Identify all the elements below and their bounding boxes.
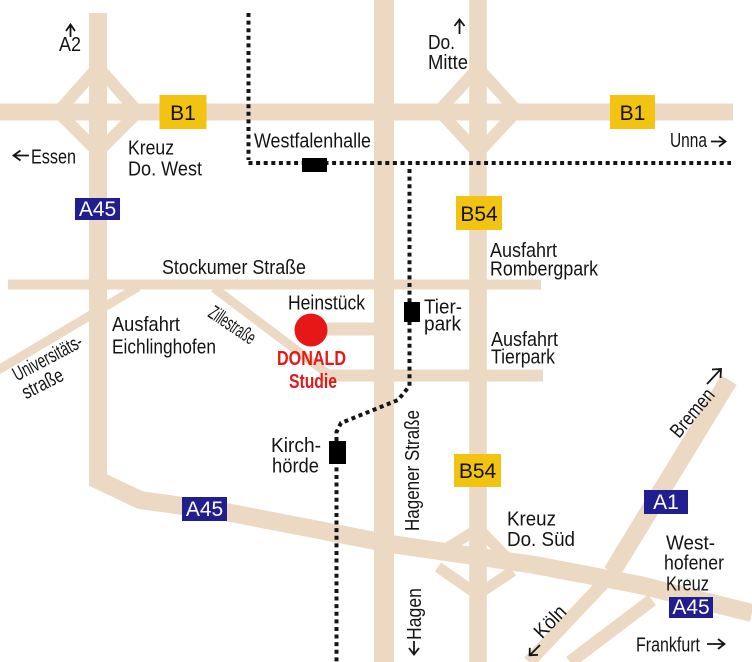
svg-text:Westfalenhalle: Westfalenhalle xyxy=(254,131,371,153)
svg-text:Unna: Unna xyxy=(670,130,708,152)
svg-text:Frankfurt: Frankfurt xyxy=(636,635,700,657)
svg-text:A1: A1 xyxy=(653,491,679,514)
svg-text:B1: B1 xyxy=(170,102,196,125)
svg-text:B54: B54 xyxy=(459,460,497,483)
svg-text:hörde: hörde xyxy=(272,456,319,478)
svg-text:Kreuz: Kreuz xyxy=(666,574,709,596)
svg-text:hofener: hofener xyxy=(664,553,724,575)
svg-text:Hagener Straße: Hagener Straße xyxy=(402,410,424,531)
svg-text:Rombergpark: Rombergpark xyxy=(490,259,599,281)
svg-text:Eichlinghofen: Eichlinghofen xyxy=(112,337,216,359)
svg-text:Kreuz: Kreuz xyxy=(128,138,174,160)
svg-text:Studie: Studie xyxy=(289,371,337,393)
svg-text:Do. Süd: Do. Süd xyxy=(507,529,575,551)
svg-text:Hagen: Hagen xyxy=(404,588,426,640)
svg-text:Kirch-: Kirch- xyxy=(271,435,321,457)
svg-text:Mitte: Mitte xyxy=(428,52,468,74)
svg-text:Tierpark: Tierpark xyxy=(491,347,556,369)
svg-text:A45: A45 xyxy=(79,198,116,221)
svg-text:Stockumer Straße: Stockumer Straße xyxy=(162,257,306,279)
svg-text:Essen: Essen xyxy=(31,147,76,169)
svg-text:A45: A45 xyxy=(186,498,223,521)
svg-text:Do. West: Do. West xyxy=(128,159,202,181)
svg-text:B1: B1 xyxy=(620,102,646,125)
svg-text:Kreuz: Kreuz xyxy=(507,509,556,531)
svg-text:DONALD: DONALD xyxy=(277,348,346,370)
svg-text:Do.: Do. xyxy=(428,32,455,54)
svg-text:park: park xyxy=(424,314,462,336)
svg-text:West-: West- xyxy=(666,533,715,555)
svg-text:A45: A45 xyxy=(672,596,709,619)
svg-text:Ausfahrt: Ausfahrt xyxy=(112,314,180,336)
svg-text:A2: A2 xyxy=(59,34,81,56)
svg-text:Heinstück: Heinstück xyxy=(288,293,366,315)
svg-text:B54: B54 xyxy=(460,203,498,226)
